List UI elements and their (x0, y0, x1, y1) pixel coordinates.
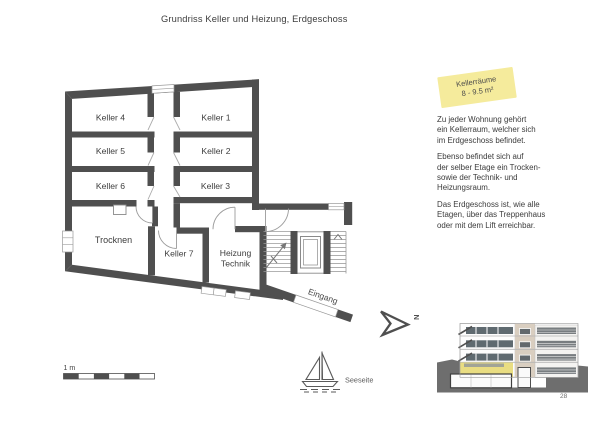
room-label-technik: Technik (221, 259, 251, 269)
room-label-trocknen: Trocknen (95, 235, 132, 245)
building-elevation-thumbnail (437, 324, 588, 393)
door-leaves (148, 117, 180, 200)
room-label-keller2: Keller 2 (201, 146, 230, 156)
room-label-keller3: Keller 3 (201, 181, 230, 191)
north-arrow-icon: N (381, 312, 421, 336)
elevation-garage (451, 374, 512, 388)
room-label-keller6: Keller 6 (96, 181, 125, 191)
lift-shaft (291, 231, 331, 274)
room-label-keller7: Keller 7 (164, 249, 193, 259)
north-letter: N (412, 315, 421, 320)
room-label-keller4: Keller 4 (96, 113, 125, 123)
floor-plan-drawing: Keller 4 Keller 5 Keller 6 Keller 1 Kell… (0, 0, 600, 424)
brochure-page: Grundriss Keller und Heizung, Erdgeschos… (0, 0, 600, 424)
elevation-windows (466, 327, 513, 361)
seaside-label: Seeseite (345, 376, 373, 385)
floor-plan: Keller 4 Keller 5 Keller 6 Keller 1 Kell… (63, 79, 354, 322)
room-label-heizung: Heizung (220, 248, 252, 258)
sailboat-icon (300, 352, 340, 393)
room-label-keller1: Keller 1 (201, 113, 230, 123)
room-label-keller5: Keller 5 (96, 146, 125, 156)
scale-label: 1 m (64, 365, 76, 372)
shaft-box (114, 205, 127, 215)
scale-bar: 1 m (64, 365, 155, 379)
